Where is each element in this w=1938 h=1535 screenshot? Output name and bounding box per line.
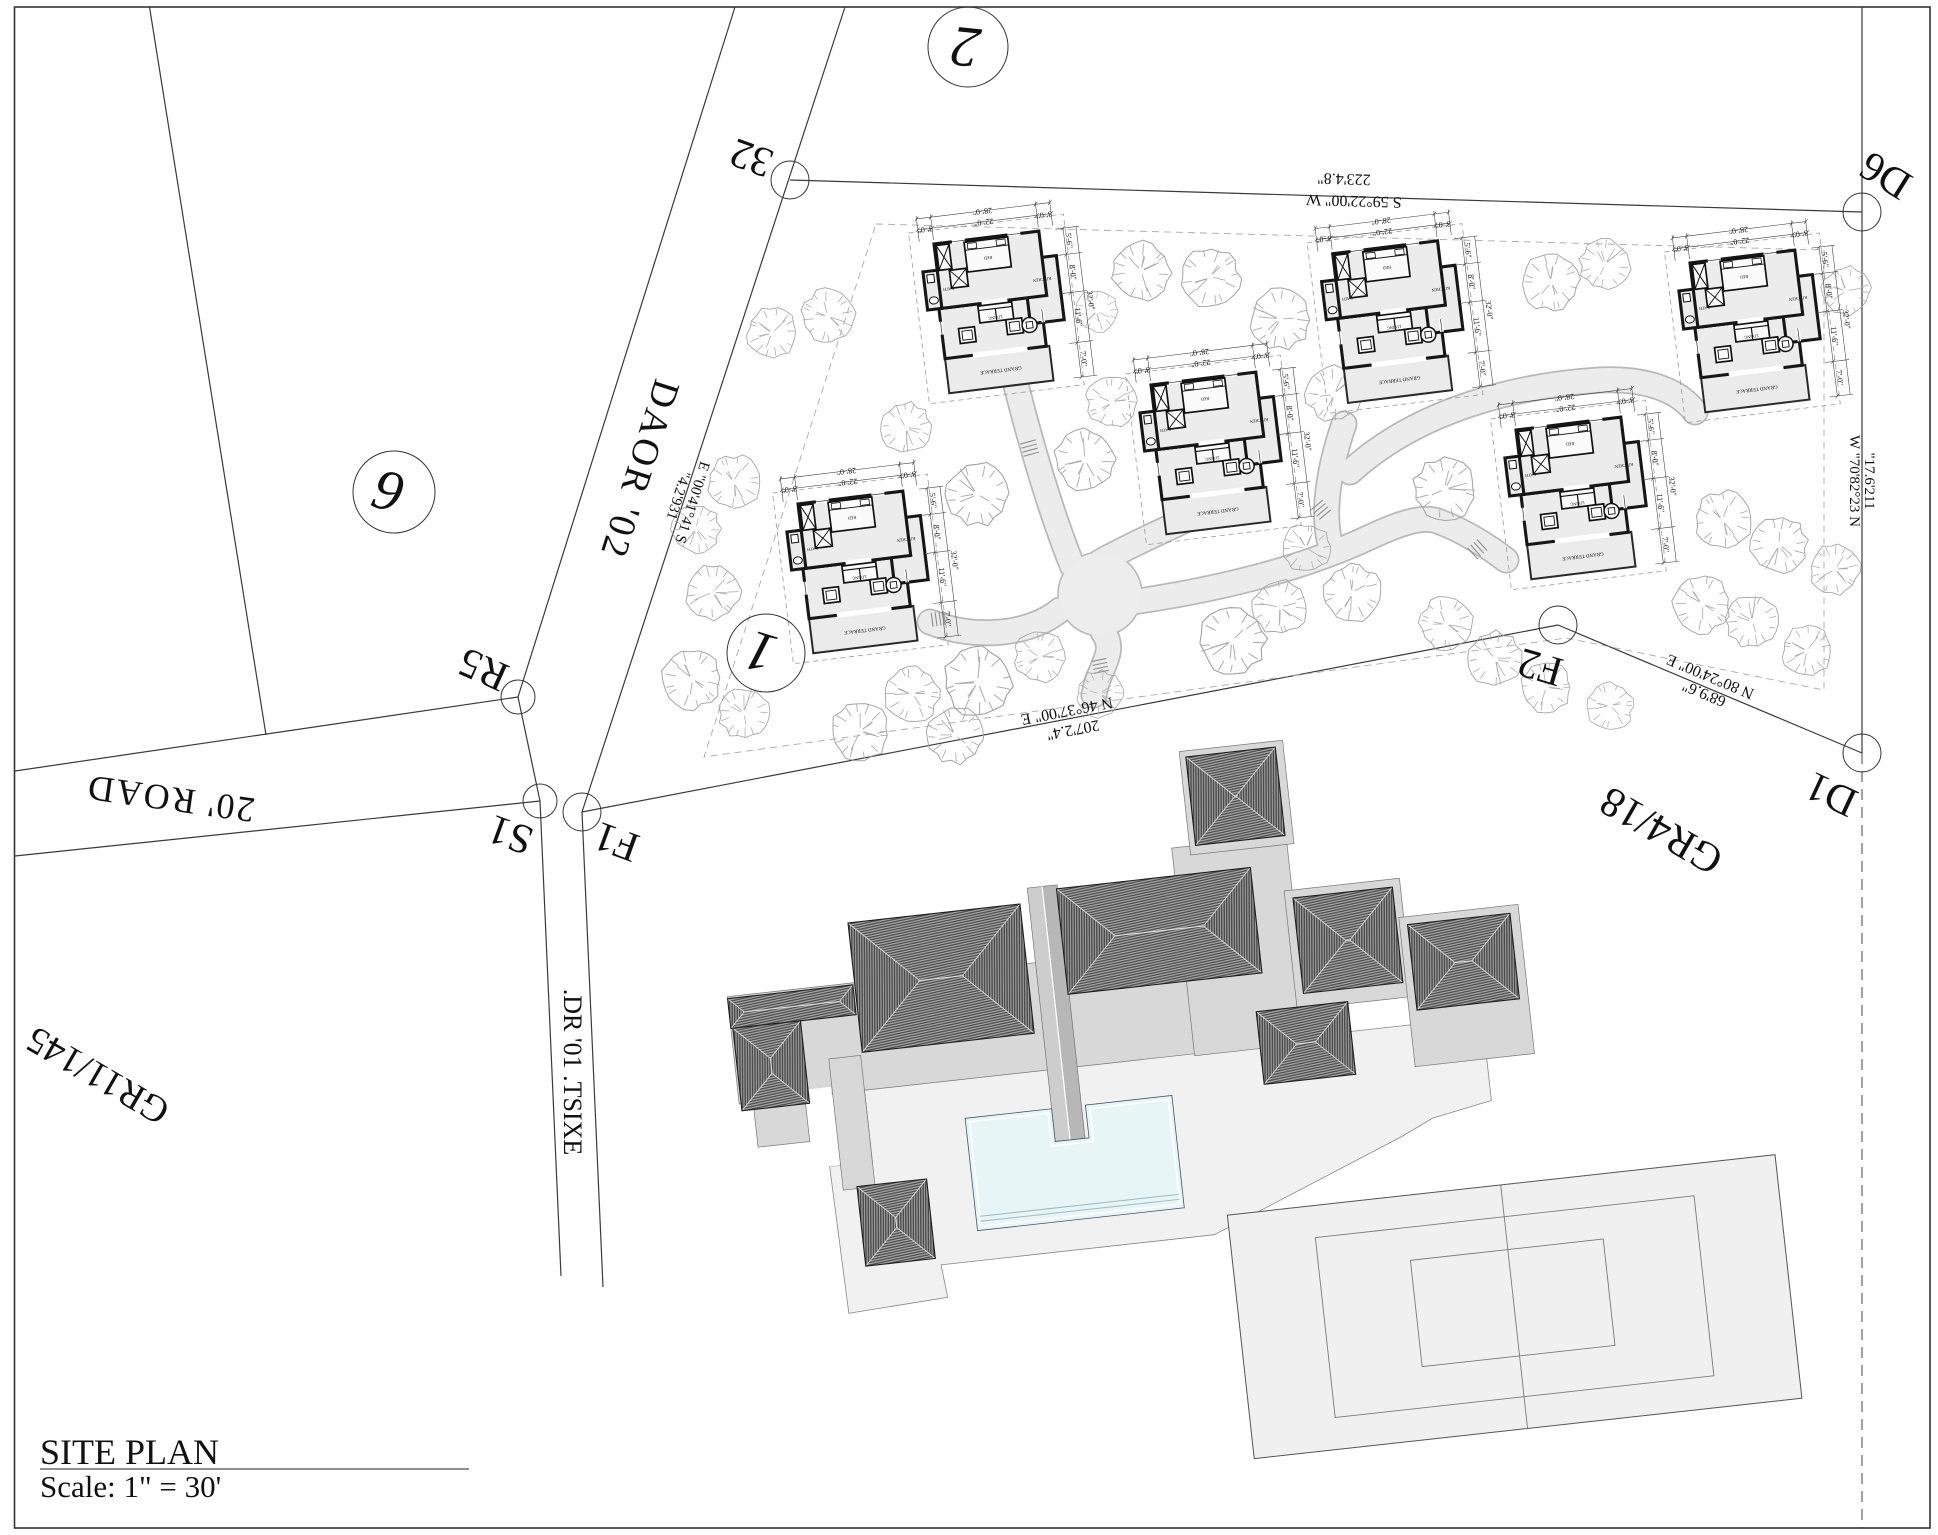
svg-text:Scale: 1" = 30': Scale: 1" = 30' (40, 1469, 221, 1504)
svg-text:S 59°22'00" W: S 59°22'00" W (1305, 191, 1402, 211)
svg-text:W "70'82°23 N: W "70'82°23 N (1846, 435, 1862, 527)
svg-text:SITE PLAN: SITE PLAN (40, 1432, 219, 1472)
svg-text:223'4.8": 223'4.8" (1317, 169, 1371, 188)
svg-text:"17.6'211: "17.6'211 (1861, 452, 1877, 509)
svg-text:.DR '01 .TSIXE: .DR '01 .TSIXE (558, 989, 587, 1155)
